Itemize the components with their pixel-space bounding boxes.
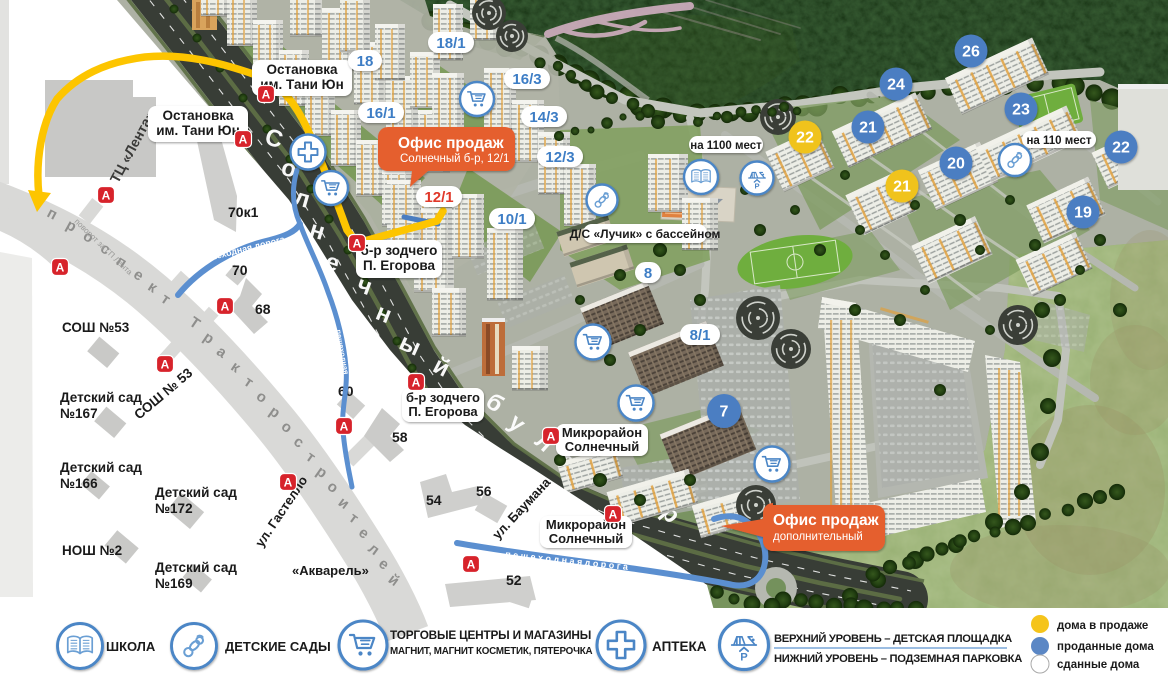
svg-text:СОШ №53: СОШ №53: [62, 320, 130, 335]
svg-text:№167: №167: [60, 406, 98, 421]
svg-text:ТОРГОВЫЕ ЦЕНТРЫ И МАГАЗИНЫ: ТОРГОВЫЕ ЦЕНТРЫ И МАГАЗИНЫ: [390, 628, 591, 642]
svg-text:70: 70: [232, 262, 248, 278]
svg-text:Офис продаж: Офис продаж: [398, 135, 505, 152]
svg-text:А: А: [547, 430, 556, 444]
svg-text:А: А: [340, 420, 349, 434]
svg-text:18/1: 18/1: [436, 35, 465, 52]
svg-text:Солнечный б-р, 12/1: Солнечный б-р, 12/1: [400, 153, 509, 165]
svg-text:58: 58: [392, 429, 408, 445]
svg-text:Р: Р: [754, 181, 759, 190]
svg-text:сданные дома: сданные дома: [1057, 659, 1140, 671]
svg-text:проданные дома: проданные дома: [1057, 641, 1154, 653]
svg-text:Детский сад: Детский сад: [60, 460, 142, 475]
svg-text:А: А: [262, 88, 271, 102]
svg-text:26: 26: [962, 44, 980, 61]
svg-text:им. Тани Юн: им. Тани Юн: [156, 123, 240, 138]
svg-text:дома в продаже: дома в продаже: [1057, 620, 1148, 632]
svg-text:НОШ №2: НОШ №2: [62, 543, 122, 558]
svg-text:А: А: [239, 133, 248, 147]
svg-text:АПТЕКА: АПТЕКА: [652, 639, 707, 654]
svg-text:Микрорайон: Микрорайон: [562, 425, 642, 440]
svg-text:23: 23: [1012, 102, 1030, 119]
svg-text:на 1100 мест: на 1100 мест: [690, 140, 762, 152]
svg-text:№169: №169: [155, 576, 193, 591]
svg-text:Д/С «Лучик» с бассейном: Д/С «Лучик» с бассейном: [570, 227, 721, 241]
svg-text:б-р зодчего: б-р зодчего: [406, 390, 480, 405]
svg-text:20: 20: [947, 156, 965, 173]
svg-text:8/1: 8/1: [690, 327, 711, 344]
svg-text:А: А: [221, 300, 230, 314]
svg-text:ШКОЛА: ШКОЛА: [106, 639, 156, 654]
svg-text:№166: №166: [60, 476, 98, 491]
svg-text:П. Егорова: П. Егорова: [363, 258, 436, 273]
svg-text:А: А: [284, 476, 293, 490]
svg-text:16/1: 16/1: [366, 105, 395, 122]
svg-text:16/3: 16/3: [512, 71, 541, 88]
svg-text:Детский сад: Детский сад: [155, 485, 237, 500]
svg-text:А: А: [467, 558, 476, 572]
svg-text:22: 22: [796, 130, 814, 147]
svg-text:«Акварель»: «Акварель»: [292, 563, 369, 578]
svg-text:56: 56: [476, 483, 492, 499]
svg-text:№172: №172: [155, 501, 193, 516]
svg-text:Солнечный: Солнечный: [565, 439, 640, 454]
svg-text:б-р зодчего: б-р зодчего: [361, 243, 438, 258]
svg-text:А: А: [609, 508, 618, 522]
svg-text:А: А: [102, 189, 111, 203]
svg-text:21: 21: [893, 179, 911, 196]
svg-text:22: 22: [1112, 140, 1130, 157]
svg-text:54: 54: [426, 492, 442, 508]
svg-text:А: А: [161, 358, 170, 372]
svg-text:21: 21: [859, 120, 877, 137]
svg-text:П. Егорова: П. Егорова: [408, 404, 478, 419]
svg-text:8: 8: [644, 265, 652, 282]
svg-text:НИЖНИЙ УРОВЕНЬ – ПОДЗЕМНАЯ ПАР: НИЖНИЙ УРОВЕНЬ – ПОДЗЕМНАЯ ПАРКОВКА: [774, 652, 1022, 665]
svg-text:12/1: 12/1: [424, 189, 453, 206]
svg-text:А: А: [56, 261, 65, 275]
svg-text:дополнительный: дополнительный: [773, 531, 863, 543]
svg-text:19: 19: [1074, 205, 1092, 222]
svg-text:Детский сад: Детский сад: [60, 390, 142, 405]
svg-text:14/3: 14/3: [529, 109, 558, 126]
svg-text:Солнечный: Солнечный: [549, 531, 624, 546]
svg-text:70к1: 70к1: [228, 204, 259, 220]
svg-text:68: 68: [255, 301, 271, 317]
svg-text:А: А: [412, 376, 421, 390]
svg-text:Офис продаж: Офис продаж: [773, 512, 880, 529]
svg-text:Детский сад: Детский сад: [155, 560, 237, 575]
svg-text:Остановка: Остановка: [266, 62, 338, 77]
svg-text:10/1: 10/1: [497, 211, 526, 228]
svg-text:12/3: 12/3: [545, 149, 574, 166]
svg-text:А: А: [353, 237, 362, 251]
svg-text:7: 7: [720, 404, 729, 421]
svg-text:18: 18: [357, 53, 374, 70]
svg-text:24: 24: [887, 77, 905, 94]
svg-text:Р: Р: [740, 651, 748, 663]
svg-text:ВЕРХНИЙ УРОВЕНЬ – ДЕТСКАЯ ПЛОЩ: ВЕРХНИЙ УРОВЕНЬ – ДЕТСКАЯ ПЛОЩАДКА: [774, 632, 1012, 645]
svg-text:на 110 мест: на 110 мест: [1026, 135, 1091, 147]
svg-text:52: 52: [506, 572, 522, 588]
svg-text:ДЕТСКИЕ САДЫ: ДЕТСКИЕ САДЫ: [225, 639, 331, 654]
svg-text:МАГНИТ, МАГНИТ КОСМЕТИК, ПЯТЕР: МАГНИТ, МАГНИТ КОСМЕТИК, ПЯТЕРОЧКА: [390, 646, 593, 657]
svg-text:Остановка: Остановка: [162, 108, 234, 123]
